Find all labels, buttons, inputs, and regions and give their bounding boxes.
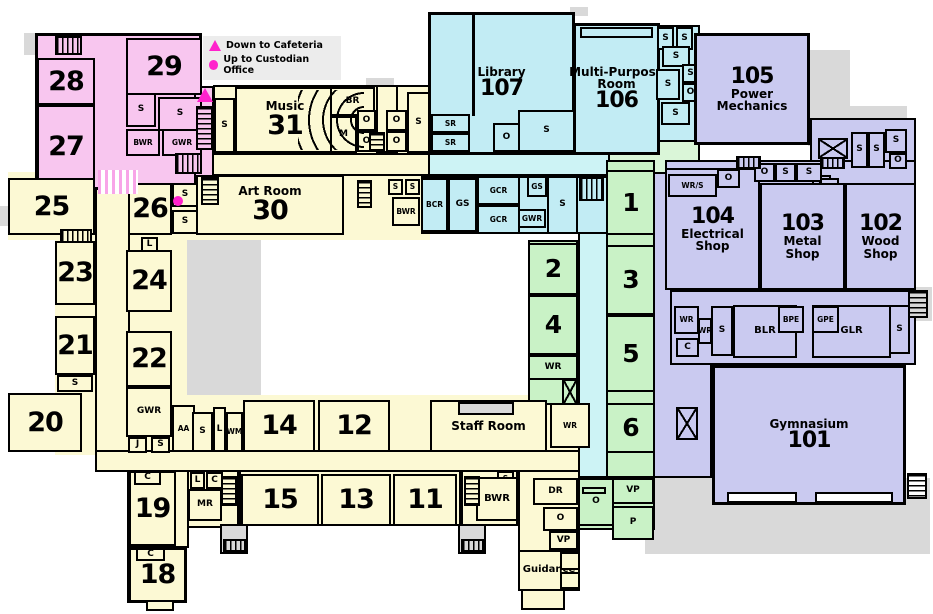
room-wr-staff: WR xyxy=(550,403,590,448)
room-bwr-bottom: BWR xyxy=(476,477,518,521)
room-wm: WM xyxy=(226,412,243,452)
counter-o-green xyxy=(582,487,606,494)
stair-104 xyxy=(736,156,761,169)
room-s-tr-b-label: S xyxy=(873,145,879,154)
room-mr: MR xyxy=(188,489,222,521)
room-bwr-art-label: BWR xyxy=(396,208,415,216)
room-3-label: 3 xyxy=(622,267,638,293)
room-s-103b: S xyxy=(796,163,822,182)
room-23-label: 23 xyxy=(57,259,93,287)
room-102-label: Shop xyxy=(863,248,897,260)
floor-plan: Down to Cafeteria Up to Custodian Office… xyxy=(0,0,933,614)
stair-art-right xyxy=(357,180,372,208)
room-1: 1 xyxy=(606,170,655,235)
library-inner-wall xyxy=(472,14,475,116)
room-bcr-label: BCR xyxy=(426,201,443,209)
room-105-label: 105 xyxy=(731,66,774,88)
room-o-d-label: O xyxy=(393,137,401,146)
room-105-label: Mechanics xyxy=(717,100,788,112)
room-s-col-c-label: S xyxy=(673,52,679,61)
room-l-bottom-label: L xyxy=(217,425,223,434)
room-blr-label: BLR xyxy=(754,326,776,336)
room-s-29a-label: S xyxy=(138,105,144,114)
room-s-26a-label: S xyxy=(182,190,188,199)
room-11-label: 11 xyxy=(407,486,443,514)
room-l-mr-label: L xyxy=(195,476,201,485)
room-27: 27 xyxy=(37,105,95,188)
room-wr-pe-a: WR xyxy=(674,306,699,334)
room-o-tr-label: O xyxy=(894,156,902,165)
elevator-shaft-topright xyxy=(818,138,848,159)
room-s-21: S xyxy=(57,375,93,392)
room-s-col-b-label: S xyxy=(681,34,687,43)
room-s-tr-a: S xyxy=(851,132,868,168)
room-13: 13 xyxy=(321,474,391,526)
music-tiers xyxy=(298,90,364,150)
room-wrs-label: WR/S xyxy=(681,182,703,190)
room-18-label: 18 xyxy=(140,561,176,589)
room-vp-a-label: VP xyxy=(557,536,571,545)
room-103-label: Shop xyxy=(785,248,819,260)
room-o-c-label: O xyxy=(393,116,401,125)
room-wr-pe-a-label: WR xyxy=(679,316,693,324)
stair-11 xyxy=(464,476,480,506)
room-s-pe-b: S xyxy=(889,305,910,354)
room-art-30-label: 30 xyxy=(252,197,288,225)
room-cubby-b xyxy=(560,572,580,589)
room-wr-staff-label: WR xyxy=(563,422,577,430)
room-20-label: 20 xyxy=(27,409,63,437)
room-s-pe-a-label: S xyxy=(719,326,725,335)
room-l-24-label: L xyxy=(147,240,153,249)
room-20: 20 xyxy=(8,393,82,452)
stair-room1 xyxy=(579,177,604,201)
room-103: 103MetalShop xyxy=(760,183,845,290)
room-23: 23 xyxy=(55,241,95,305)
room-glr-label: GLR xyxy=(840,326,862,336)
room-p: P xyxy=(612,506,654,540)
room-vp-a: VP xyxy=(549,531,578,550)
room-103-label: 103 xyxy=(781,213,824,235)
room-sr-b-label: SR xyxy=(445,139,456,147)
room-s-library: S xyxy=(518,110,575,152)
room-gcr-a: GCR xyxy=(477,176,520,205)
room-gs-b-label: GS xyxy=(531,183,543,191)
room-wr-green: WR xyxy=(528,355,578,380)
room-o-c: O xyxy=(386,110,407,131)
room-j: J xyxy=(128,437,147,453)
room-14-label: 14 xyxy=(261,412,297,440)
room-wrs: WR/S xyxy=(668,174,717,197)
room-5: 5 xyxy=(606,315,655,392)
stair-mr xyxy=(221,476,237,506)
room-cubby-a xyxy=(560,552,580,570)
room-102-label: Wood xyxy=(862,235,900,247)
room-c-mr-label: C xyxy=(211,476,218,485)
room-29-label: 29 xyxy=(146,53,182,81)
room-104-label: Shop xyxy=(695,240,729,252)
room-5-label: 5 xyxy=(622,341,638,367)
stair-right-upper xyxy=(908,290,928,318)
room-105: 105PowerMechanics xyxy=(694,33,810,145)
room-c-18: C xyxy=(136,548,165,561)
room-s-col-e-label: S xyxy=(687,69,693,78)
stair-pink-top xyxy=(55,36,82,55)
room-sr-a-label: SR xyxy=(445,120,456,128)
room-s-tr-a-label: S xyxy=(856,145,862,154)
room-wr-green-label: WR xyxy=(545,363,562,372)
room-s-j-label: S xyxy=(157,440,163,449)
room-24-label: 24 xyxy=(131,267,167,295)
legend-label-cafeteria: Down to Cafeteria xyxy=(226,40,323,51)
room-dr: DR xyxy=(533,478,578,505)
blk-guidance-tail xyxy=(521,589,565,610)
room-wm-label: WM xyxy=(227,428,243,436)
room-s-art-a: S xyxy=(388,179,403,195)
room-12: 12 xyxy=(318,400,390,452)
legend-item-custodian: Up to Custodian Office xyxy=(209,54,335,76)
room-s-art-b: S xyxy=(405,179,420,195)
room-6: 6 xyxy=(606,403,655,453)
room-gwr-22: GWR xyxy=(126,387,172,437)
triangle-icon xyxy=(209,40,221,51)
room-gwr-cyan: GWR xyxy=(518,209,546,228)
room-6-label: 6 xyxy=(622,415,638,441)
room-s-103b-label: S xyxy=(806,168,812,177)
room-11: 11 xyxy=(393,474,457,526)
room-s-103a: S xyxy=(775,163,796,182)
room-c-18-label: C xyxy=(147,550,154,559)
room-104-label: 104 xyxy=(691,206,734,228)
room-106: Multi-PurposeRoom106 xyxy=(573,23,660,155)
room-27-label: 27 xyxy=(48,133,84,161)
room-c-19-label: C xyxy=(144,473,151,482)
room-28-label: 28 xyxy=(48,68,84,96)
room-gpe-label: GPE xyxy=(817,316,834,324)
room-mr-label: MR xyxy=(197,500,213,509)
room-gs-a-label: GS xyxy=(456,200,470,209)
room-1-label: 1 xyxy=(622,190,638,216)
room-bcr: BCR xyxy=(421,178,448,232)
room-bwr-art: BWR xyxy=(392,197,420,226)
room-c-19: C xyxy=(134,471,161,485)
stair-vestibule-left xyxy=(223,539,246,552)
room-s-tr-b: S xyxy=(868,132,885,168)
room-103-label: Metal xyxy=(783,235,821,247)
room-s-tr-c-label: S xyxy=(893,136,899,145)
legend: Down to Cafeteria Up to Custodian Office xyxy=(203,36,341,80)
room-s-music-a: S xyxy=(214,98,235,153)
room-s-cyan-label: S xyxy=(559,200,565,209)
room-l-bottom: L xyxy=(213,407,226,452)
room-c-pe-label: C xyxy=(684,343,691,352)
room-o-green: O xyxy=(578,478,614,526)
stair-music xyxy=(369,132,385,152)
room-2: 2 xyxy=(528,243,578,295)
room-s-music-c: S xyxy=(407,92,430,153)
room-bwr-bottom-label: BWR xyxy=(484,494,510,504)
room-s-29b-label: S xyxy=(177,109,183,118)
room-vp-b: VP xyxy=(612,478,654,504)
corr-bottom xyxy=(95,450,610,472)
staff-platform xyxy=(458,402,514,415)
room-gs-a: GS xyxy=(448,178,477,232)
ramp-pink xyxy=(98,170,138,194)
room-gwr-cyan-label: GWR xyxy=(522,215,542,223)
corr-left xyxy=(95,172,130,470)
room-gcr-b: GCR xyxy=(477,205,520,234)
room-25-label: 25 xyxy=(34,193,70,221)
room-21-label: 21 xyxy=(57,332,93,360)
room-25: 25 xyxy=(8,178,95,235)
room-aa-label: AA xyxy=(178,425,190,433)
room-13-label: 13 xyxy=(338,486,374,514)
room-bwr-pink-label: BWR xyxy=(133,139,152,147)
room-o-library: O xyxy=(493,123,520,152)
stage-106 xyxy=(580,27,653,38)
gym-mat-2 xyxy=(815,492,893,503)
stair-gym-right xyxy=(907,473,927,499)
room-gpe: GPE xyxy=(812,306,839,333)
stair-vestibule-right xyxy=(461,539,484,552)
room-s-music-a-label: S xyxy=(221,121,227,130)
room-sr-a: SR xyxy=(431,114,470,133)
room-o-tr: O xyxy=(889,153,907,169)
room-21: 21 xyxy=(55,316,95,375)
courtyard xyxy=(176,237,261,398)
legend-label-custodian: Up to Custodian Office xyxy=(223,54,335,76)
room-4: 4 xyxy=(528,295,578,355)
stair-23 xyxy=(60,229,92,243)
room-bwr-pink: BWR xyxy=(126,129,160,156)
room-s-pe-a: S xyxy=(711,306,733,356)
room-22: 22 xyxy=(126,331,172,387)
room-102-label: 102 xyxy=(859,213,902,235)
room-2-label: 2 xyxy=(545,256,561,282)
room-library-107-label: 107 xyxy=(480,78,523,100)
room-s-bottom: S xyxy=(192,412,213,452)
room-s-cyan: S xyxy=(547,176,578,234)
room-staff-label: Staff Room xyxy=(451,420,526,432)
room-s-j: S xyxy=(151,437,170,453)
room-gwr-22-label: GWR xyxy=(137,407,161,416)
room-c-pe: C xyxy=(676,338,699,357)
room-o-library-label: O xyxy=(503,133,511,142)
circle-icon xyxy=(209,60,218,70)
elevator-shaft-green xyxy=(562,379,578,405)
room-gcr-a-label: GCR xyxy=(490,187,507,195)
room-s-pe-b-label: S xyxy=(896,325,902,334)
room-s-26b-label: S xyxy=(182,217,188,226)
room-o-104: O xyxy=(717,169,740,188)
room-gymnasium-101-label: 101 xyxy=(788,430,831,452)
legend-item-cafeteria: Down to Cafeteria xyxy=(209,40,335,51)
room-gwr-pink-label: GWR xyxy=(172,139,192,147)
room-s-art-b-label: S xyxy=(410,183,415,191)
room-dr-label: DR xyxy=(548,487,562,496)
stair-art-left xyxy=(201,177,219,205)
room-26-label: 26 xyxy=(132,195,168,223)
room-12-label: 12 xyxy=(336,412,372,440)
room-s-tr-c: S xyxy=(885,129,907,153)
room-gcr-b-label: GCR xyxy=(490,216,507,224)
room-o-d: O xyxy=(386,131,407,152)
room-29: 29 xyxy=(126,38,202,95)
room-vp-b-label: VP xyxy=(626,486,640,495)
room-s-col-f-label: S xyxy=(672,109,678,118)
marker-dot-custodian xyxy=(173,196,183,206)
room-l-mr: L xyxy=(190,472,205,489)
room-p-label: P xyxy=(630,518,637,527)
room-s-26b: S xyxy=(172,210,198,234)
marker-triangle-cafeteria xyxy=(197,88,213,102)
room-bpe: BPE xyxy=(778,306,804,333)
room-o-green-label: O xyxy=(592,497,600,506)
room-15: 15 xyxy=(241,474,319,526)
room-22-label: 22 xyxy=(131,345,167,373)
room-wr-pe-b-label: WR xyxy=(698,327,712,335)
stair-pink-bottom xyxy=(175,153,202,174)
room-s-music-c-label: S xyxy=(415,118,421,127)
room-106-label: 106 xyxy=(595,90,638,112)
room-o-104-label: O xyxy=(725,174,733,183)
room-sr-b: SR xyxy=(431,133,470,152)
room-j-label: J xyxy=(136,440,139,449)
room-o-guidance-label: O xyxy=(557,514,565,523)
room-s-library-label: S xyxy=(543,126,549,135)
room-bpe-label: BPE xyxy=(783,316,799,324)
room-s-art-a-label: S xyxy=(393,183,398,191)
room-s-21-label: S xyxy=(72,379,78,388)
room-3: 3 xyxy=(606,245,655,315)
room-s-bottom-label: S xyxy=(199,427,205,436)
room-o-guidance: O xyxy=(543,507,578,531)
room-gs-b: GS xyxy=(527,176,547,197)
room-s-col-a-label: S xyxy=(662,34,668,43)
room-19-label: 19 xyxy=(135,495,171,523)
room-s-col-d: S xyxy=(656,69,680,100)
room-15-label: 15 xyxy=(262,486,298,514)
room-s-col-d-label: S xyxy=(665,80,671,89)
room-s-29a: S xyxy=(126,93,156,127)
room-14: 14 xyxy=(243,400,315,452)
room-102: 102WoodShop xyxy=(845,183,916,290)
stair-pink-arm xyxy=(196,106,213,150)
room-gymnasium-101: Gymnasium101 xyxy=(712,365,906,505)
room-s-103a-label: S xyxy=(782,168,788,177)
room-28: 28 xyxy=(37,58,95,105)
gym-mat-1 xyxy=(727,492,797,503)
room-24: 24 xyxy=(126,250,172,312)
room-wr-pe-b: WR xyxy=(698,318,712,344)
room-106-label: Multi-Purpose xyxy=(569,66,664,78)
room-o-103-label: O xyxy=(761,168,769,177)
elevator-shaft-gym xyxy=(676,407,698,440)
room-4-label: 4 xyxy=(545,312,561,338)
room-s-col-f: S xyxy=(661,102,690,125)
